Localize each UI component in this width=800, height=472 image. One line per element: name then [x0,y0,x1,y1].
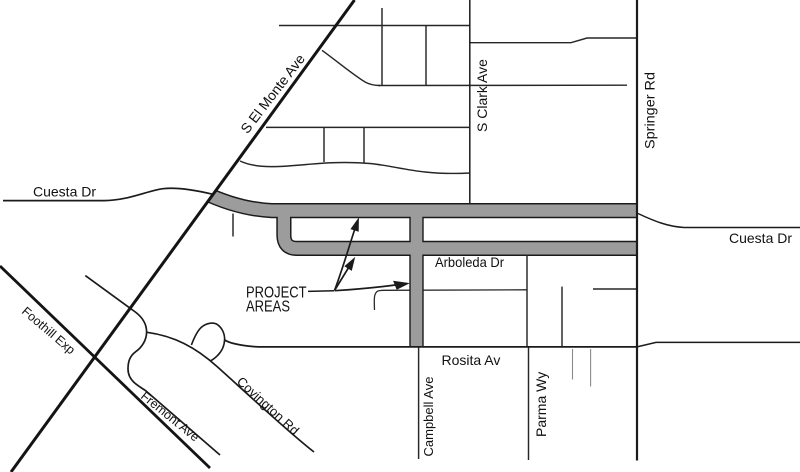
svg-text:Cuesta Dr: Cuesta Dr [729,230,792,246]
svg-text:AREAS: AREAS [246,299,290,316]
svg-text:Parma Wy: Parma Wy [533,372,549,437]
svg-text:Arboleda Dr: Arboleda Dr [435,254,504,270]
svg-text:Cuesta Dr: Cuesta Dr [33,184,96,200]
svg-text:Campbell Ave: Campbell Ave [421,377,436,457]
svg-text:Springer Rd: Springer Rd [642,72,658,149]
svg-text:Rosita Av: Rosita Av [442,352,501,368]
svg-text:S Clark Ave: S Clark Ave [474,59,490,132]
